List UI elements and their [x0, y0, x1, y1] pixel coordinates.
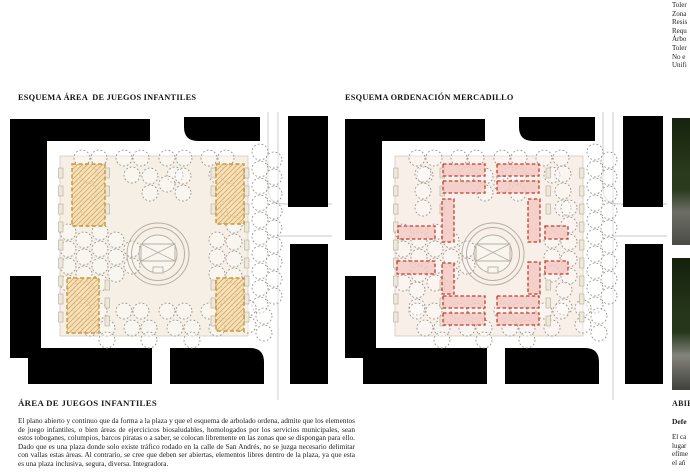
plaza-diagram-market-stalls: [345, 112, 667, 400]
article-section: ÁREA DE JUEGOS INFANTILES El plano abier…: [18, 398, 355, 468]
plaza-diagram-play-areas: [10, 112, 332, 400]
site-photo-top: [672, 118, 690, 245]
document-page: TolerZonaResisRequÁrboTolerNo eUnifi ESQ…: [0, 0, 690, 475]
plant-criteria-line: Toler: [672, 1, 687, 10]
plant-criteria-line: Árbo: [672, 35, 687, 44]
right-column-body-line: el añ: [672, 459, 690, 468]
figure-title-market: ESQUEMA ORDENACIÓN MERCADILLO: [345, 93, 514, 102]
article-body: El plano abierto y continuo que da forma…: [18, 417, 355, 468]
right-column-clipped: ABIE Defe El calugarefímeel añ: [672, 399, 690, 467]
plant-criteria-line: Toler: [672, 44, 687, 53]
plant-criteria-line: Requ: [672, 27, 687, 36]
plant-criteria-list: TolerZonaResisRequÁrboTolerNo eUnifi: [672, 1, 687, 70]
figure-title-play-areas: ESQUEMA ÁREA DE JUEGOS INFANTILES: [18, 93, 196, 102]
plant-criteria-line: Unifi: [672, 61, 687, 70]
right-column-body-line: lugar: [672, 442, 690, 451]
plant-criteria-line: Zona: [672, 10, 687, 19]
article-heading: ÁREA DE JUEGOS INFANTILES: [18, 398, 355, 408]
right-column-body-fragments: El calugarefímeel añ: [672, 433, 690, 467]
plant-criteria-line: No e: [672, 53, 687, 62]
right-column-heading-fragment: ABIE: [672, 399, 690, 408]
right-column-body-line: El ca: [672, 433, 690, 442]
site-photo-bottom: [672, 258, 690, 390]
plant-criteria-line: Resis: [672, 18, 687, 27]
right-column-body-line: efíme: [672, 450, 690, 459]
right-column-subheading-fragment: Defe: [672, 417, 690, 426]
